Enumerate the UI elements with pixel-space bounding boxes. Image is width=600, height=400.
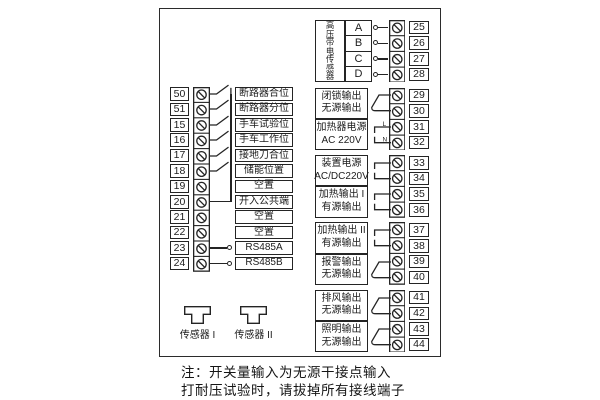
hv-sensor-title-box: 高压带电传感器	[315, 20, 345, 83]
terminal-number: 28	[409, 68, 429, 82]
terminal-number: 38	[409, 239, 429, 253]
output-label-line2: 无源输出	[322, 103, 362, 116]
terminal-number: 35	[409, 187, 429, 201]
terminal-number: 17	[170, 149, 189, 163]
input-label: 储能位置	[235, 164, 293, 178]
output-label-box: 加热输出 I有源输出	[315, 186, 368, 217]
terminal-number: 19	[170, 180, 189, 194]
terminal-number: 44	[409, 338, 429, 352]
terminal-number: 37	[409, 223, 429, 237]
sensor-wire	[378, 27, 389, 28]
hv-sensor-title-char: 器	[326, 72, 334, 81]
dry-contact-switch-icon	[210, 81, 232, 97]
hv-phase-letter: C	[346, 51, 371, 66]
output-label-box: 排风输出无源输出	[315, 290, 368, 321]
terminal-number: 20	[170, 195, 189, 209]
output-label-line1: 加热输出 II	[317, 225, 365, 238]
terminal-screw-column	[389, 155, 406, 218]
terminal-number: 42	[409, 307, 429, 321]
dry-contact-switch-icon	[210, 127, 232, 143]
wire-node-icon	[227, 245, 232, 250]
terminal-number: 40	[409, 271, 429, 285]
comm-wire	[210, 247, 227, 248]
input-label: 空置	[235, 210, 293, 224]
terminal-number: 16	[170, 133, 189, 147]
output-label-line1: 排风输出	[322, 293, 362, 306]
power-wire-icon: LN	[367, 120, 391, 151]
terminal-number: 39	[409, 255, 429, 269]
terminal-number: 51	[170, 103, 189, 117]
terminal-number: 33	[409, 156, 429, 170]
output-label-box: 闭锁输出无源输出	[315, 88, 368, 119]
input-label: 接地刀合位	[235, 149, 293, 163]
hv-phase-column: ABCD	[345, 20, 372, 83]
terminal-wiring-diagram: 注：开关量输入为无源干接点输入 打耐压试验时，请拔掉所有接线端子 50断路器合位…	[0, 0, 600, 400]
terminal-number: 22	[170, 226, 189, 240]
output-label-box: 照明输出无源输出	[315, 321, 368, 352]
wire-label-n: N	[383, 136, 388, 143]
terminal-number: 25	[409, 21, 429, 35]
input-label: 断路器合位	[235, 87, 293, 101]
terminal-number: 29	[409, 89, 429, 103]
output-label-line1: 加热器电源	[317, 122, 367, 135]
input-label: 手车试验位	[235, 118, 293, 132]
terminal-number: 27	[409, 52, 429, 66]
output-label-line1: 报警输出	[322, 257, 362, 270]
sensor-wire	[378, 58, 389, 59]
input-label: 断路器分位	[235, 103, 293, 117]
input-label: 开入公共端	[235, 195, 293, 209]
terminal-number: 15	[170, 118, 189, 132]
output-label-box: 装置电源AC/DC220V	[315, 155, 368, 186]
relay-contact-icon	[367, 255, 391, 286]
output-label-line2: AC/DC220V	[314, 171, 368, 184]
output-label-box: 加热器电源AC 220V	[315, 119, 368, 150]
power-wire-icon	[367, 187, 391, 218]
hv-phase-letter: D	[346, 66, 371, 81]
hv-phase-letter: A	[346, 21, 371, 35]
output-label-line2: 无源输出	[322, 305, 362, 318]
common-bus-line	[230, 94, 231, 202]
sensor-symbol-icon	[184, 306, 211, 324]
terminal-number: 36	[409, 203, 429, 217]
sensor-label: 传感器 I	[170, 326, 225, 338]
terminal-number: 30	[409, 104, 429, 118]
power-wire-icon	[367, 156, 391, 187]
terminal-number: 21	[170, 210, 189, 224]
output-label-line1: 加热输出 I	[319, 189, 365, 202]
sensor-wire	[378, 74, 389, 75]
wire-node-icon	[227, 261, 232, 266]
terminal-screw-column	[389, 20, 406, 83]
terminal-number: 24	[170, 257, 189, 271]
output-label-line2: AC 220V	[321, 135, 361, 148]
terminal-number: 43	[409, 322, 429, 336]
terminal-screw-column	[389, 88, 406, 151]
terminal-number: 18	[170, 164, 189, 178]
relay-contact-icon	[367, 322, 391, 353]
power-wire-icon	[367, 223, 391, 254]
output-label-line2: 无源输出	[322, 337, 362, 350]
terminal-number: 31	[409, 120, 429, 134]
output-label-line1: 照明输出	[322, 324, 362, 337]
dry-contact-switch-icon	[210, 96, 232, 112]
terminal-number: 32	[409, 136, 429, 150]
dry-contact-switch-icon	[210, 143, 232, 159]
output-label-line2: 无源输出	[322, 269, 362, 282]
output-label-line1: 装置电源	[322, 158, 362, 171]
output-label-line2: 有源输出	[322, 202, 362, 215]
sensor-label: 传感器 II	[226, 326, 281, 338]
relay-contact-icon	[367, 291, 391, 322]
sensor-symbol-icon	[240, 306, 267, 324]
terminal-number: 34	[409, 172, 429, 186]
output-label-line2: 有源输出	[322, 238, 362, 251]
hv-phase-letter: B	[346, 35, 371, 50]
note-line-2: 打耐压试验时，请拔掉所有接线端子	[181, 379, 405, 399]
common-wire	[210, 201, 231, 202]
terminal-screw-column	[389, 290, 406, 353]
comm-wire	[210, 263, 227, 264]
terminal-number: 26	[409, 36, 429, 50]
input-label: RS485B	[235, 257, 293, 271]
wire-label-l: L	[383, 121, 387, 128]
terminal-screw-column	[389, 222, 406, 285]
output-label-line1: 闭锁输出	[322, 91, 362, 104]
output-label-box: 加热输出 II有源输出	[315, 222, 368, 253]
input-label: RS485A	[235, 241, 293, 255]
terminal-screw-column	[193, 87, 210, 272]
terminal-number: 50	[170, 87, 189, 101]
dry-contact-switch-icon	[210, 158, 232, 174]
dry-contact-switch-icon	[210, 112, 232, 128]
input-label: 手车工作位	[235, 133, 293, 147]
input-label: 空置	[235, 180, 293, 194]
input-label: 空置	[235, 226, 293, 240]
terminal-number: 23	[170, 241, 189, 255]
terminal-number: 41	[409, 291, 429, 305]
relay-contact-icon	[367, 88, 391, 119]
output-label-box: 报警输出无源输出	[315, 254, 368, 285]
sensor-wire	[378, 43, 389, 44]
